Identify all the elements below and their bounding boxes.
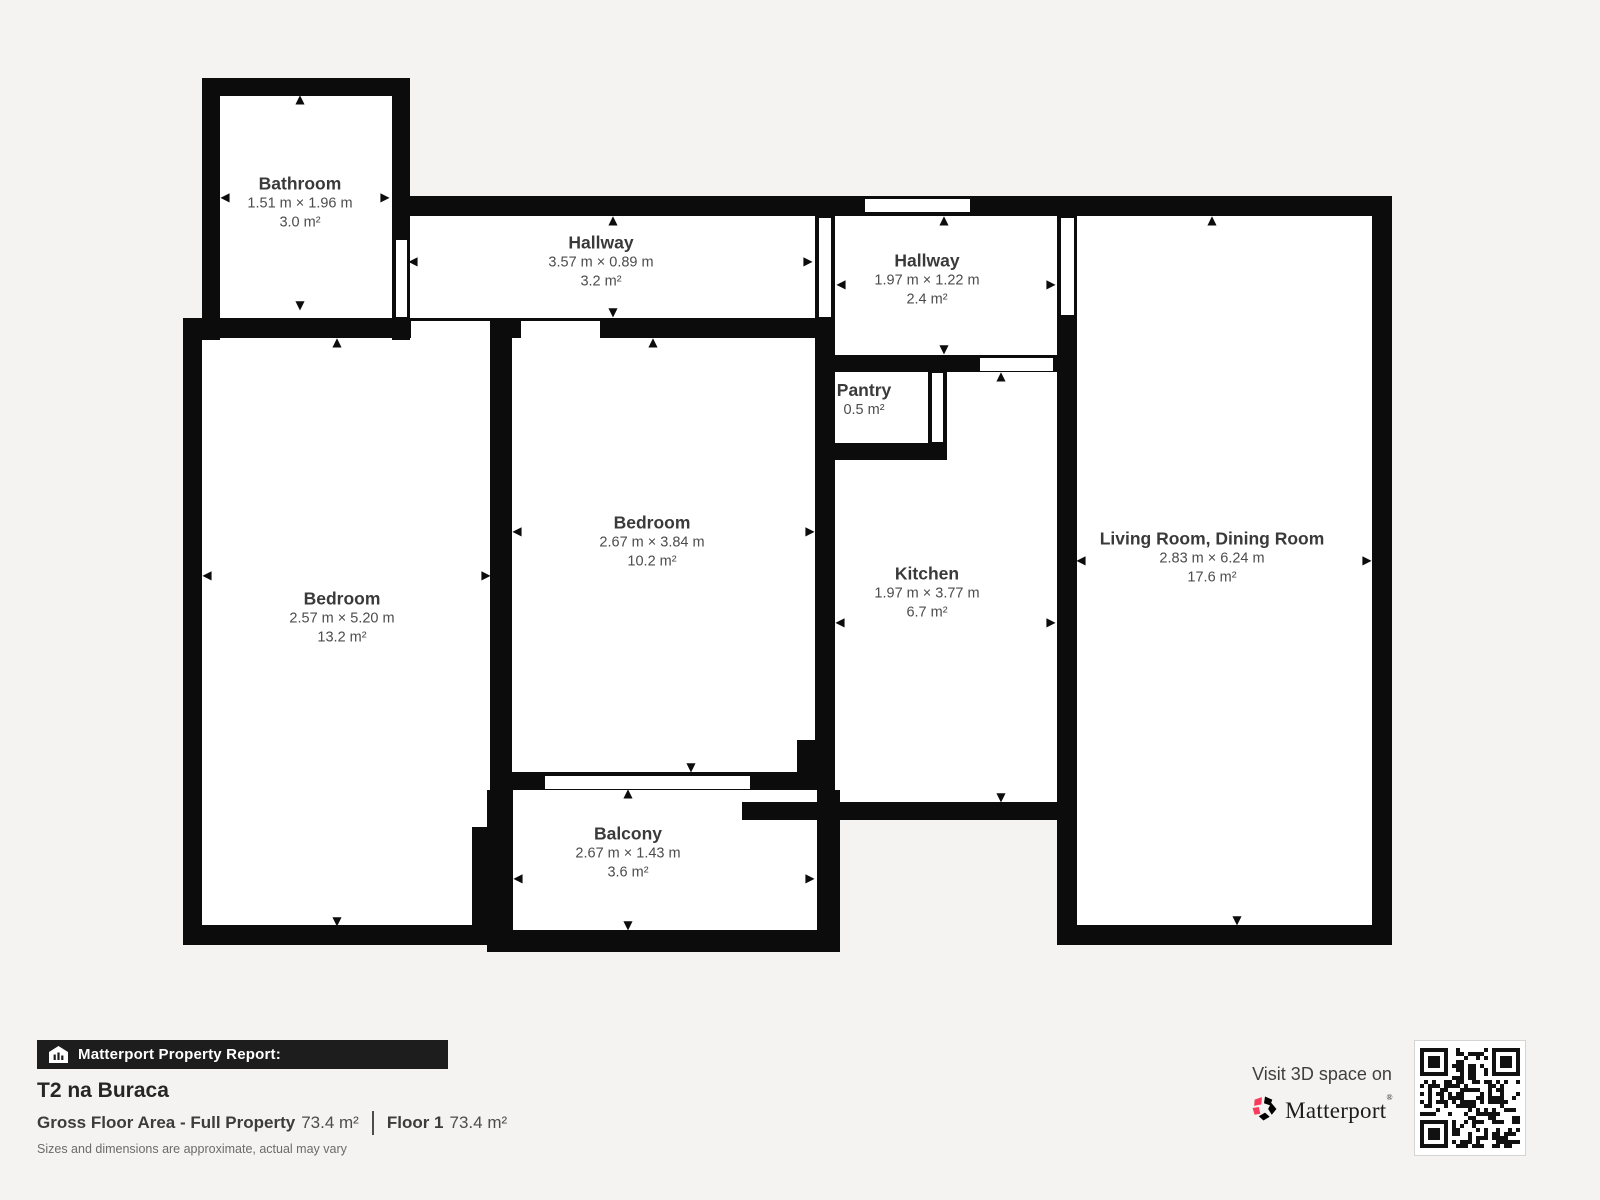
room-dimensions: 1.97 m × 1.22 m bbox=[874, 272, 979, 291]
arrow-down-icon: ▼ bbox=[295, 299, 304, 311]
arrow-down-icon: ▼ bbox=[332, 915, 341, 927]
label-pantry: Pantry 0.5 m² bbox=[837, 380, 891, 420]
door-entrance bbox=[865, 199, 970, 212]
wall-kitchen-bottom bbox=[742, 802, 1077, 820]
wall-bedroom-left-bottom bbox=[183, 925, 492, 945]
door-balcony bbox=[545, 776, 750, 789]
arrow-right-icon: ▶ bbox=[805, 525, 814, 537]
door-bedroom-center bbox=[521, 321, 600, 338]
door-bathroom bbox=[396, 240, 407, 317]
room-name: Balcony bbox=[575, 823, 680, 844]
arrow-left-icon: ◀ bbox=[408, 255, 417, 267]
gross-area-value: 73.4 m² bbox=[301, 1113, 359, 1133]
label-bathroom: Bathroom 1.51 m × 1.96 m 3.0 m² bbox=[247, 173, 352, 232]
qr-code bbox=[1414, 1040, 1526, 1156]
wall-balcony-left bbox=[487, 790, 513, 952]
arrow-left-icon: ◀ bbox=[835, 616, 844, 628]
wall-bathroom-left bbox=[202, 78, 220, 340]
room-name: Bedroom bbox=[289, 588, 394, 609]
label-hallway-top: Hallway 3.57 m × 0.89 m 3.2 m² bbox=[548, 232, 653, 291]
area-summary: Gross Floor Area - Full Property 73.4 m²… bbox=[37, 1111, 507, 1135]
arrow-down-icon: ▼ bbox=[623, 919, 632, 931]
floor-area-value: 73.4 m² bbox=[450, 1113, 508, 1133]
arrow-up-icon: ▲ bbox=[608, 214, 617, 226]
room-dimensions: 1.97 m × 3.77 m bbox=[874, 585, 979, 604]
opening-hall-kitchen bbox=[980, 358, 1053, 371]
arrow-down-icon: ▼ bbox=[686, 761, 695, 773]
matterport-logo-icon bbox=[1251, 1095, 1278, 1122]
label-bedroom-left: Bedroom 2.57 m × 5.20 m 13.2 m² bbox=[289, 588, 394, 647]
gross-area-label: Gross Floor Area - Full Property bbox=[37, 1113, 295, 1133]
wall-bedroom-left-left bbox=[183, 318, 202, 945]
matterport-wordmark: Matterport® bbox=[1285, 1093, 1393, 1124]
arrow-right-icon: ▶ bbox=[1046, 278, 1055, 290]
wall-living-right bbox=[1372, 196, 1392, 945]
label-balcony: Balcony 2.67 m × 1.43 m 3.6 m² bbox=[575, 823, 680, 882]
arrow-down-icon: ▼ bbox=[608, 306, 617, 318]
arrow-up-icon: ▲ bbox=[623, 787, 632, 799]
house-icon bbox=[49, 1046, 68, 1063]
arrow-right-icon: ▶ bbox=[481, 569, 490, 581]
arrow-right-icon: ▶ bbox=[805, 872, 814, 884]
door-hall-living bbox=[1061, 218, 1074, 315]
room-area: 6.7 m² bbox=[874, 604, 979, 623]
arrow-right-icon: ▶ bbox=[1046, 616, 1055, 628]
room-area: 0.5 m² bbox=[837, 401, 891, 420]
wall-living-bottom bbox=[1057, 925, 1392, 945]
disclaimer-text: Sizes and dimensions are approximate, ac… bbox=[37, 1142, 347, 1156]
room-dimensions: 2.83 m × 6.24 m bbox=[1100, 550, 1325, 569]
arrow-down-icon: ▼ bbox=[996, 791, 1005, 803]
arrow-left-icon: ◀ bbox=[220, 191, 229, 203]
divider bbox=[372, 1111, 374, 1135]
arrow-down-icon: ▼ bbox=[939, 343, 948, 355]
wall-bedroom-divider bbox=[490, 318, 512, 790]
report-header-label: Matterport Property Report: bbox=[78, 1046, 281, 1063]
wall-pantry-bottom bbox=[815, 443, 947, 460]
wall-balcony-bottom bbox=[487, 930, 840, 952]
label-kitchen: Kitchen 1.97 m × 3.77 m 6.7 m² bbox=[874, 563, 979, 622]
room-dimensions: 2.67 m × 3.84 m bbox=[599, 534, 704, 553]
arrow-left-icon: ◀ bbox=[513, 872, 522, 884]
arrow-left-icon: ◀ bbox=[836, 278, 845, 290]
label-hallway-entry: Hallway 1.97 m × 1.22 m 2.4 m² bbox=[874, 250, 979, 309]
arrow-right-icon: ▶ bbox=[1362, 554, 1371, 566]
arrow-right-icon: ▶ bbox=[380, 191, 389, 203]
room-area: 3.0 m² bbox=[247, 214, 352, 233]
arrow-up-icon: ▲ bbox=[1207, 214, 1216, 226]
floorplan-canvas: Bathroom 1.51 m × 1.96 m 3.0 m² Hallway … bbox=[0, 0, 1600, 1200]
room-area: 13.2 m² bbox=[289, 629, 394, 648]
floorplan-report-page: { "plan": { "rooms": [ {"id":"bathroom",… bbox=[0, 0, 1600, 1200]
arrow-up-icon: ▲ bbox=[996, 370, 1005, 382]
visit-3d-text: Visit 3D space on bbox=[1238, 1064, 1406, 1085]
arrow-left-icon: ◀ bbox=[1076, 554, 1085, 566]
room-dimensions: 2.67 m × 1.43 m bbox=[575, 845, 680, 864]
arrow-down-icon: ▼ bbox=[1232, 914, 1241, 926]
room-name: Living Room, Dining Room bbox=[1100, 528, 1325, 549]
wall-balcony-right bbox=[817, 790, 840, 952]
room-name: Bathroom bbox=[247, 173, 352, 194]
property-name: T2 na Buraca bbox=[37, 1079, 169, 1103]
arrow-left-icon: ◀ bbox=[202, 569, 211, 581]
room-area: 3.2 m² bbox=[548, 273, 653, 292]
room-area: 3.6 m² bbox=[575, 864, 680, 883]
room-name: Kitchen bbox=[874, 563, 979, 584]
label-living: Living Room, Dining Room 2.83 m × 6.24 m… bbox=[1100, 528, 1325, 587]
room-dimensions: 3.57 m × 0.89 m bbox=[548, 254, 653, 273]
label-bedroom-center: Bedroom 2.67 m × 3.84 m 10.2 m² bbox=[599, 512, 704, 571]
door-hallways bbox=[819, 218, 831, 317]
room-dimensions: 2.57 m × 5.20 m bbox=[289, 610, 394, 629]
arrow-up-icon: ▲ bbox=[648, 336, 657, 348]
report-header-bar: Matterport Property Report: bbox=[37, 1040, 448, 1069]
floor-label: Floor 1 bbox=[387, 1113, 444, 1133]
room-dimensions: 1.51 m × 1.96 m bbox=[247, 195, 352, 214]
room-area: 10.2 m² bbox=[599, 553, 704, 572]
arrow-up-icon: ▲ bbox=[295, 93, 304, 105]
wall-bathroom-top bbox=[202, 78, 410, 96]
room-area: 2.4 m² bbox=[874, 291, 979, 310]
arrow-right-icon: ▶ bbox=[803, 255, 812, 267]
arrow-left-icon: ◀ bbox=[512, 525, 521, 537]
visit-3d-link[interactable]: Visit 3D space on Matterport® bbox=[1238, 1064, 1406, 1124]
wall-corner-step bbox=[797, 740, 817, 774]
door-bedroom-left bbox=[411, 321, 490, 338]
arrow-up-icon: ▲ bbox=[939, 214, 948, 226]
room-name: Pantry bbox=[837, 380, 891, 401]
room-area: 17.6 m² bbox=[1100, 569, 1325, 588]
room-name: Bedroom bbox=[599, 512, 704, 533]
door-pantry bbox=[932, 373, 943, 442]
arrow-up-icon: ▲ bbox=[332, 336, 341, 348]
room-name: Hallway bbox=[874, 250, 979, 271]
room-name: Hallway bbox=[548, 232, 653, 253]
